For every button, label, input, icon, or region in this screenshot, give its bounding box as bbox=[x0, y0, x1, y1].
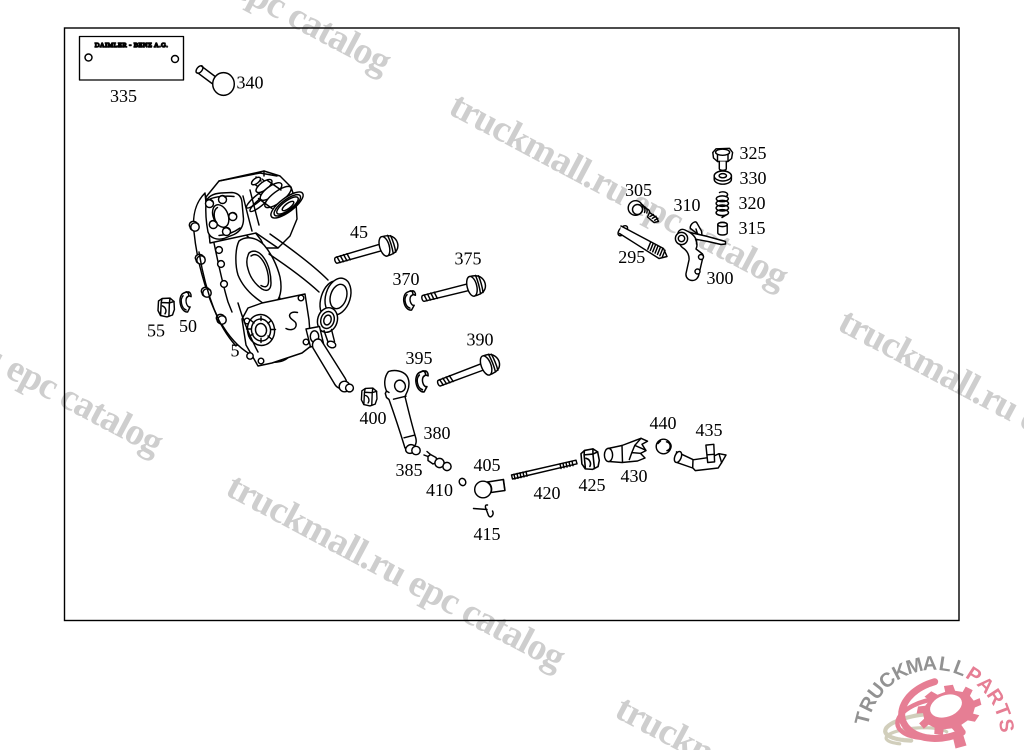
svg-text:400: 400 bbox=[360, 408, 387, 428]
svg-text:440: 440 bbox=[650, 413, 677, 433]
svg-text:370: 370 bbox=[393, 269, 420, 289]
svg-text:395: 395 bbox=[406, 348, 433, 368]
svg-text:315: 315 bbox=[739, 218, 766, 238]
svg-text:380: 380 bbox=[424, 423, 451, 443]
svg-text:5: 5 bbox=[231, 341, 240, 361]
svg-text:A: A bbox=[922, 653, 938, 676]
svg-text:425: 425 bbox=[579, 475, 606, 495]
svg-text:45: 45 bbox=[350, 222, 368, 242]
svg-text:DAIMLER - BENZ A.G.: DAIMLER - BENZ A.G. bbox=[95, 42, 169, 49]
svg-text:305: 305 bbox=[625, 180, 652, 200]
svg-text:430: 430 bbox=[621, 466, 648, 486]
svg-text:410: 410 bbox=[426, 480, 453, 500]
svg-text:390: 390 bbox=[467, 330, 494, 350]
svg-text:55: 55 bbox=[147, 321, 165, 341]
svg-text:295: 295 bbox=[618, 247, 645, 267]
svg-text:320: 320 bbox=[739, 193, 766, 213]
svg-text:340: 340 bbox=[237, 73, 264, 93]
svg-text:375: 375 bbox=[455, 249, 482, 269]
svg-text:50: 50 bbox=[179, 316, 197, 336]
svg-text:330: 330 bbox=[740, 168, 767, 188]
svg-text:310: 310 bbox=[674, 195, 701, 215]
svg-text:405: 405 bbox=[474, 455, 501, 475]
svg-text:420: 420 bbox=[534, 483, 561, 503]
svg-text:385: 385 bbox=[396, 460, 423, 480]
svg-text:415: 415 bbox=[474, 524, 501, 544]
svg-text:325: 325 bbox=[740, 143, 767, 163]
svg-text:335: 335 bbox=[110, 86, 137, 106]
svg-text:300: 300 bbox=[707, 268, 734, 288]
svg-text:435: 435 bbox=[696, 420, 723, 440]
